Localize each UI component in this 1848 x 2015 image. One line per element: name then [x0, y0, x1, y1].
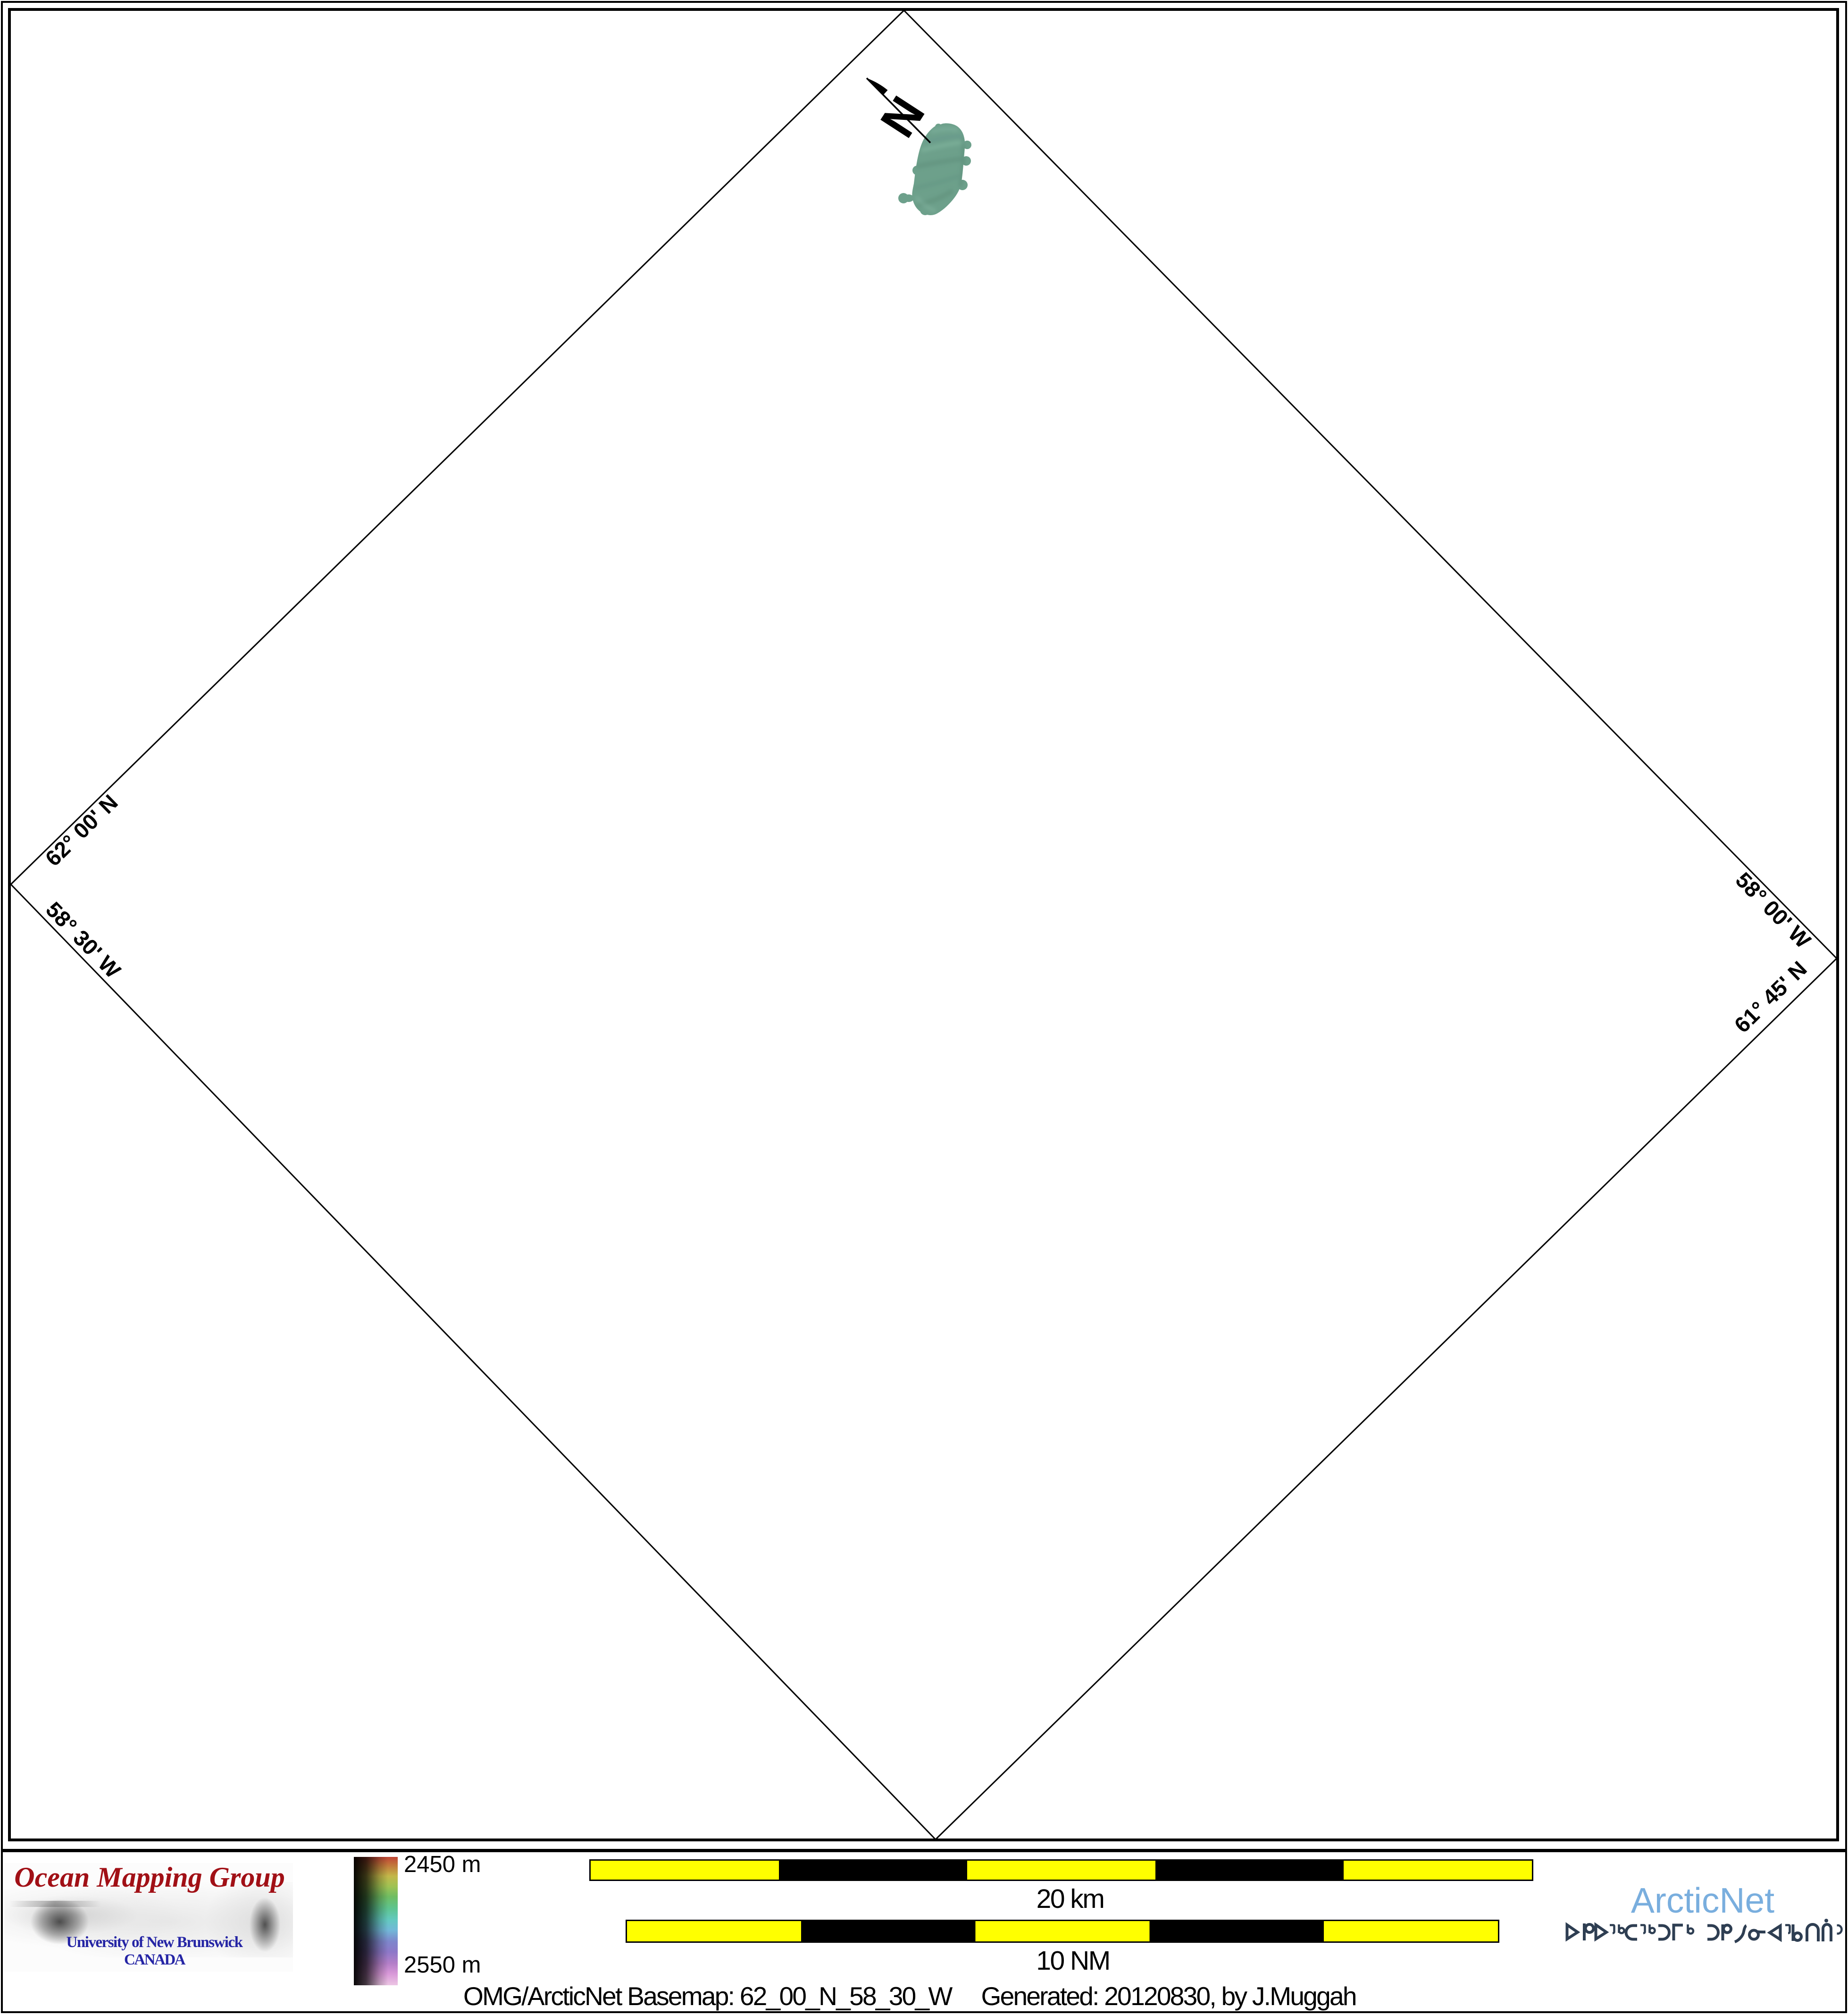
- svg-text:61° 45' N: 61° 45' N: [1730, 957, 1812, 1038]
- svg-text:58° 30' W: 58° 30' W: [41, 897, 125, 983]
- svg-text:62° 00' N: 62° 00' N: [41, 790, 123, 871]
- svg-text:58° 00' W: 58° 00' W: [1731, 867, 1815, 953]
